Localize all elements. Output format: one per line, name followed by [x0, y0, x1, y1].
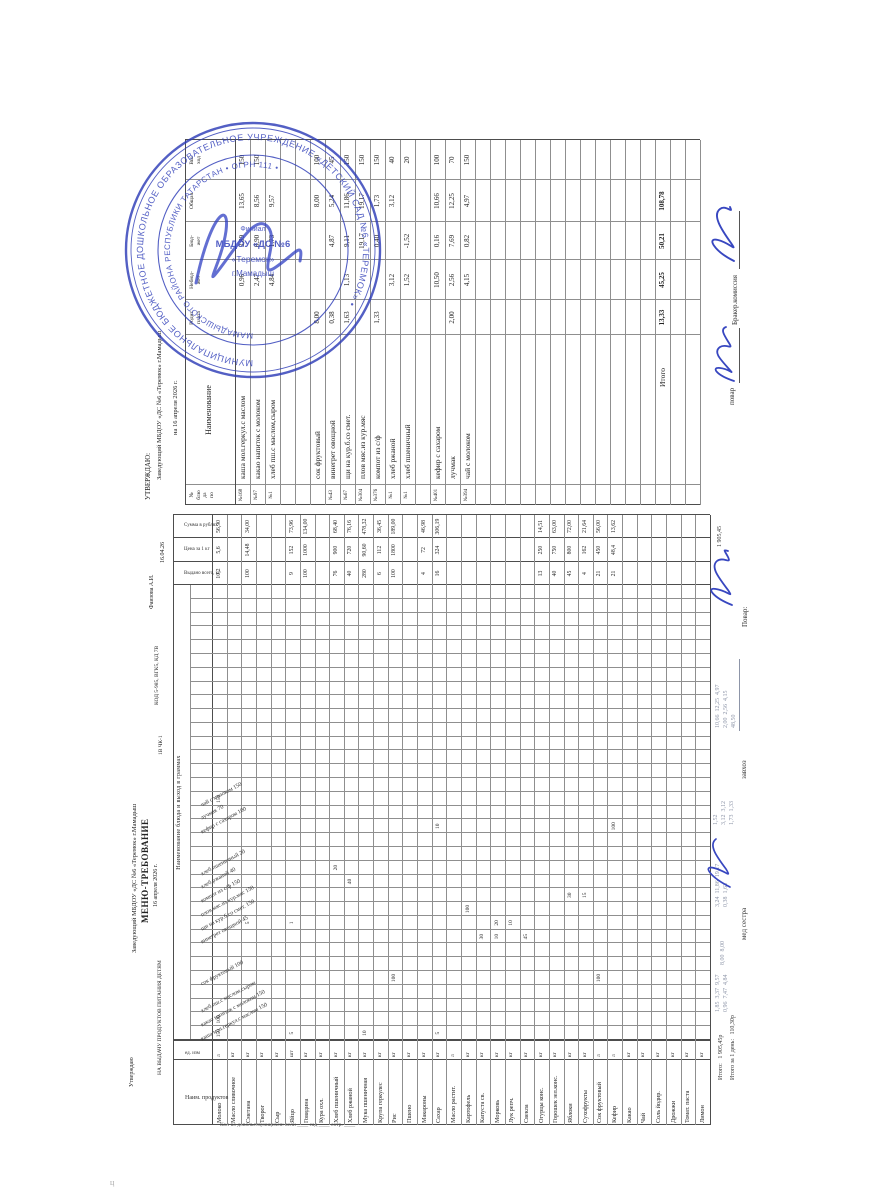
dish-column-line [190, 598, 710, 599]
dish-column-line [190, 832, 710, 833]
product-price: 14,48 [245, 539, 251, 561]
product-unit: кг [362, 1052, 368, 1057]
product-row-line [564, 515, 565, 1125]
dish-column-line [190, 956, 710, 957]
dish-card-number: №304 [359, 486, 364, 504]
product-name: Мука пшеничная [362, 1078, 369, 1123]
product-unit: кг [318, 1052, 324, 1057]
product-name: Рис [391, 1114, 398, 1124]
dish-card-number: №1 [389, 486, 394, 504]
product-price: 720 [347, 539, 353, 561]
product-sum: 134,00 [303, 516, 309, 537]
product-row-line [695, 515, 696, 1125]
product-price: 112 [377, 539, 383, 561]
dish-name: кефир с сахаром [433, 427, 442, 479]
row-line [415, 140, 416, 505]
cost-value: 70 [448, 143, 456, 177]
zavhoz-label: завхоз [740, 760, 748, 779]
product-unit: кг [377, 1052, 383, 1057]
cost-value: 3,12 [388, 184, 396, 218]
per-day-line: Итого за 1 день: 110,30р [730, 1015, 736, 1080]
quantity-cell: 100 [216, 1012, 222, 1026]
row-line [610, 140, 611, 505]
column-major-line [173, 561, 710, 562]
dish-column-line [190, 805, 710, 806]
form-subtitle: НА ВЫДАЧУ ПРОДУКТОВ ПИТАНИЯ ДЕТЯМ [157, 960, 163, 1075]
product-unit: кг [494, 1052, 500, 1057]
menu-requisition-page: Утверждаю Заведующий МБДОУ «ДС №6 «Терем… [128, 515, 775, 1175]
product-unit: кг [538, 1052, 544, 1057]
pencil-cook-sums: 10,66 12,25 4,97 2,00 2,56 4,15 48,50 [714, 685, 738, 729]
official-stamp: МУНИЦИПАЛЬНОЕ БЮДЖЕТНОЕ ДОШКОЛЬНОЕ ОБРАЗ… [118, 115, 388, 385]
product-unit: кг [699, 1052, 705, 1057]
product-name: Макароны [421, 1095, 428, 1123]
product-given-total: 4 [421, 563, 427, 584]
product-name: Хлеб ржаной [347, 1088, 354, 1123]
product-name: Лук репч. [508, 1098, 515, 1124]
product-name: Картофель [465, 1095, 472, 1123]
quantity-cell: 10 [508, 916, 514, 930]
product-row-line [520, 515, 521, 1125]
product-sum: 56,90 [216, 516, 222, 537]
dish-column-line [190, 984, 710, 985]
product-name: Капуста св. [479, 1093, 486, 1123]
product-sum: 36,45 [377, 516, 383, 537]
product-unit: л [450, 1054, 456, 1057]
dish-column-header: чай с молоком 150 [191, 757, 209, 802]
product-unit: кг [523, 1052, 529, 1057]
dish-column-line [190, 1011, 710, 1012]
cost-value: 2,00 [448, 301, 456, 335]
row-line [490, 140, 491, 505]
product-given-total: 10,2 [216, 563, 222, 584]
product-unit: шт [289, 1050, 295, 1057]
product-given-total: 40 [552, 563, 558, 584]
product-name: Хлеб пшеничный [333, 1077, 340, 1123]
product-price: 250 [538, 539, 544, 561]
product-price: 152 [289, 539, 295, 561]
product-unit: кг [333, 1052, 339, 1057]
product-row-line [256, 515, 257, 1125]
cost-value: 100 [433, 143, 441, 177]
table-outline-top [173, 515, 174, 1125]
product-price: 5,6 [216, 539, 222, 561]
cook-signature [708, 323, 740, 385]
product-price: 450 [596, 539, 602, 561]
product-sum: 306,19 [435, 516, 441, 537]
product-sum: 21,64 [582, 516, 588, 537]
product-price: 48,4 [611, 539, 617, 561]
quantity-cell: 150 [216, 1026, 222, 1040]
product-name: Дрожжи [670, 1101, 677, 1123]
row-line [430, 140, 431, 505]
row-line [640, 140, 641, 505]
product-row-line [373, 515, 374, 1125]
row-line [655, 140, 656, 505]
row-line [625, 140, 626, 505]
cost-value: 10,50 [433, 263, 441, 297]
quantity-cell: 10 [362, 1026, 368, 1040]
product-row-line [534, 515, 535, 1125]
product-unit: кг [391, 1052, 397, 1057]
product-unit: кг [406, 1052, 412, 1057]
product-unit: кг [567, 1052, 573, 1057]
dish-name: винегрет овощной [328, 420, 337, 479]
pencil-juice-sums: 8,00 8,00 [719, 941, 727, 965]
column-line [185, 504, 700, 505]
product-sum: 76,16 [347, 516, 353, 537]
product-given-total: 16 [435, 563, 441, 584]
dish-column-line [190, 625, 710, 626]
row-line [400, 140, 401, 505]
cost-value: 4,15 [463, 263, 471, 297]
table-outline-left [173, 1124, 710, 1125]
product-row-line [344, 515, 345, 1125]
dish-column-line [190, 791, 710, 792]
product-price: 1000 [303, 539, 309, 561]
column-major-line [173, 537, 710, 538]
product-name: Молоко [216, 1103, 223, 1123]
product-price: 324 [435, 539, 441, 561]
product-name: Кура охл. [318, 1098, 325, 1123]
svg-text:МБДОУ «ДС №6: МБДОУ «ДС №6 [216, 239, 291, 250]
product-row-line [666, 515, 667, 1125]
cost-value: 4,97 [463, 184, 471, 218]
dish-card-number: №394 [464, 486, 469, 504]
column-major-line [173, 1041, 710, 1042]
dish-group-header: Наименование блюда и выход в граммах [176, 585, 182, 1040]
column-line [185, 484, 700, 485]
product-unit: кг [640, 1052, 646, 1057]
quantity-cell: 5 [245, 916, 251, 930]
product-name: Сахар [435, 1107, 442, 1123]
row-line [700, 140, 701, 505]
dish-name: лучмак [448, 456, 457, 479]
dish-column-line [190, 943, 710, 944]
product-unit: кг [670, 1052, 676, 1057]
product-unit: л [216, 1054, 222, 1057]
product-name: Какао [626, 1107, 633, 1123]
product-sum: 34,00 [245, 516, 251, 537]
dish-column-line [190, 998, 710, 999]
product-unit: кг [508, 1052, 514, 1057]
product-price: 162 [582, 539, 588, 561]
product-sum: 478,32 [362, 516, 368, 537]
form-codes2: 1В ЧК-1 [158, 735, 164, 755]
product-unit: кг [421, 1052, 427, 1057]
cost-value: -1,52 [403, 224, 411, 258]
product-name: Огурцы конс. [538, 1087, 545, 1123]
product-row-line [315, 515, 316, 1125]
product-row-line [651, 515, 652, 1125]
product-unit: кг [479, 1052, 485, 1057]
dish-column-line [190, 667, 710, 668]
product-given-total: 100 [391, 563, 397, 584]
product-row-line [300, 515, 301, 1125]
cook-total-value: 1 905,45 [717, 526, 723, 547]
quantity-cell: 100 [596, 971, 602, 985]
dish-card-number: №43 [329, 486, 334, 504]
dish-column-line [190, 736, 710, 737]
product-name: Чай [640, 1113, 647, 1123]
dish-column-line [190, 846, 710, 847]
product-unit: кг [230, 1052, 236, 1057]
quantity-cell: 1 [289, 916, 295, 930]
dish-column-line [190, 653, 710, 654]
dish-card-number: №1 [404, 486, 409, 504]
total-value: 13,33 [658, 300, 666, 336]
scan-artifact: ц [110, 1178, 114, 1187]
product-price: 800 [567, 539, 573, 561]
quantity-cell: 20 [333, 861, 339, 875]
quantity-cell: 30 [479, 930, 485, 944]
product-sum: 46,98 [421, 516, 427, 537]
product-name: Говядина [303, 1099, 310, 1123]
product-row-line [432, 515, 433, 1125]
totals-value: 1 905,45р [718, 1035, 724, 1059]
approve-date: на 16 апреля 2026 г. [172, 380, 179, 435]
product-name: Кефир [611, 1106, 618, 1123]
product-given-total: 45 [567, 563, 573, 584]
dish-card-number: №401 [434, 486, 439, 504]
product-sum: 14,51 [538, 516, 544, 537]
product-name: Масло сливочное [230, 1077, 237, 1123]
product-name: Сок фруктовый [596, 1082, 603, 1123]
quantity-cell: 10 [494, 930, 500, 944]
product-unit: кг [684, 1052, 690, 1057]
product-row-line [402, 515, 403, 1125]
product-row-line [505, 515, 506, 1125]
column-major-line [173, 584, 710, 585]
product-name: Сухофрукты [582, 1090, 589, 1123]
product-row-line [241, 515, 242, 1125]
product-name: Пшено [406, 1105, 413, 1123]
menu-summary-page: УТВЕРЖДАЮ: Заведующий МБДОУ «ДС №6 «Тере… [130, 140, 765, 505]
unit-col-header: ед. изм [185, 1051, 200, 1056]
pencil-zavhoz-sums: 1,52 3,12 3,12 1,73 1,33 [712, 801, 736, 825]
products-col-header: Наим. продуктов [185, 1095, 228, 1101]
product-sum: 13,62 [611, 516, 617, 537]
product-unit: кг [552, 1052, 558, 1057]
product-row-line [490, 515, 491, 1125]
product-name: Масло растит. [450, 1086, 457, 1123]
row-line [505, 140, 506, 505]
product-unit: кг [465, 1052, 471, 1057]
row-line [445, 140, 446, 505]
product-sum: 72,00 [567, 516, 573, 537]
quantity-cell: 5 [289, 1026, 295, 1040]
dish-column-line [190, 929, 710, 930]
dish-column-line [190, 874, 710, 875]
quantity-cell: 30 [567, 888, 573, 902]
product-given-total: 9 [289, 563, 295, 584]
product-row-line [417, 515, 418, 1125]
row-line [670, 140, 671, 505]
product-name: Лимон [699, 1105, 706, 1123]
cook2-label: Повар: [741, 607, 749, 627]
product-unit: кг [626, 1052, 632, 1057]
commission-signature [704, 199, 742, 267]
product-given-total: 76 [333, 563, 339, 584]
product-given-total: 280 [362, 563, 368, 584]
cost-value: 0,16 [433, 224, 441, 258]
product-given-total: 4 [582, 563, 588, 584]
product-row-line [549, 515, 550, 1125]
cook-sums-underline [738, 659, 740, 731]
product-unit: кг [259, 1052, 265, 1057]
form-date-short: 16.04.26 [160, 542, 166, 563]
quantity-cell: 150 [216, 792, 222, 806]
product-row-line [388, 515, 389, 1125]
form-title: МЕНЮ-ТРЕБОВАНИЕ [140, 819, 150, 923]
dish-column-line [190, 763, 710, 764]
product-unit: кг [655, 1052, 661, 1057]
product-sum: 73,96 [289, 516, 295, 537]
dish-column-line [190, 1025, 710, 1026]
product-price: 72 [421, 539, 427, 561]
medsestra-signature [700, 833, 736, 891]
quantity-cell: 100 [465, 902, 471, 916]
product-unit: кг [582, 1052, 588, 1057]
quantity-cell: 100 [391, 971, 397, 985]
dish-card-number: №97 [254, 486, 259, 504]
product-row-line [593, 515, 594, 1125]
product-row-line [285, 515, 286, 1125]
form-date: 16 апреля 2026 г. [153, 864, 159, 907]
approve-heading: УТВЕРЖДАЮ: [144, 453, 152, 500]
product-name: Крупа геркулес [377, 1082, 384, 1123]
dish-name: хлеб ржаной [388, 438, 397, 479]
product-name: Свекла [523, 1104, 530, 1123]
product-row-line [681, 515, 682, 1125]
product-sum: 189,00 [391, 516, 397, 537]
product-name: Сметана [245, 1101, 252, 1123]
quantity-cell: 10 [435, 819, 441, 833]
quantity-cell: 45 [523, 930, 529, 944]
product-name: Яблоки [567, 1103, 574, 1123]
product-given-total: 40 [347, 563, 353, 584]
product-given-total: 6 [377, 563, 383, 584]
product-price: 90,60 [362, 539, 368, 561]
product-unit: кг [347, 1052, 353, 1057]
product-name: Морковь [494, 1100, 501, 1123]
dish-card-number: №67 [344, 486, 349, 504]
dish-name: сок фруктовый [313, 431, 322, 479]
dish-name: каша мол.геркул.с маслом [238, 396, 247, 479]
dish-name: какао напиток с молоком [253, 399, 262, 479]
dish-column-line [190, 722, 710, 723]
product-sum: 68,40 [333, 516, 339, 537]
dish-name: плов мяс.из кур.мяс [358, 415, 367, 479]
row-line [535, 140, 536, 505]
product-name: Сыр [274, 1112, 281, 1123]
dish-card-number: №168 [239, 486, 244, 504]
cost-value: 40 [388, 143, 396, 177]
column-major-line [173, 1039, 710, 1040]
dish-column-line [190, 694, 710, 695]
product-price: 750 [552, 539, 558, 561]
quantity-cell: 15 [582, 888, 588, 902]
cook2-signature [704, 545, 740, 609]
dish-name: чай с молоком [463, 433, 472, 479]
total-value: 50,21 [658, 223, 666, 259]
dish-card-number: №1 [269, 486, 274, 504]
product-row-line [329, 515, 330, 1125]
commission-label: Бракер.комиссия [731, 275, 739, 325]
product-given-total: 100 [303, 563, 309, 584]
dish-column-line [190, 860, 710, 861]
product-row-line [637, 515, 638, 1125]
approve2-heading: Утверждаю [129, 1057, 135, 1087]
product-row-line [271, 515, 272, 1125]
dish-column-line [190, 915, 710, 916]
dish-name: хлеб пшеничный [403, 425, 412, 480]
org2-line: Заведующий МБДОУ «ДС №6 «Теремок» г.Мама… [131, 804, 138, 953]
row-line [685, 140, 686, 505]
dish-card-number: №376 [374, 486, 379, 504]
product-price: 1800 [391, 539, 397, 561]
quantity-cell: 40 [347, 875, 353, 889]
table-outline-right [173, 514, 710, 515]
dish-column-line [190, 639, 710, 640]
cost-value: 12,25 [448, 184, 456, 218]
product-name: Яйцо [289, 1109, 296, 1123]
cook-label: повар [728, 388, 736, 405]
sum-col-header: Сумма в рублях [184, 523, 218, 528]
cost-value: 2,56 [448, 263, 456, 297]
total-label: Итого [658, 368, 667, 387]
product-row-line [461, 515, 462, 1125]
product-unit: л [611, 1054, 617, 1057]
product-sum: 63,00 [552, 516, 558, 537]
product-name: Творог [259, 1105, 266, 1123]
cost-value: 1,52 [403, 263, 411, 297]
quantity-cell: 100 [611, 819, 617, 833]
product-given-total: 21 [596, 563, 602, 584]
product-given-total: 100 [245, 563, 251, 584]
product-row-line [607, 515, 608, 1125]
quantity-cell: 20 [494, 916, 500, 930]
product-sum: 56,00 [596, 516, 602, 537]
per-day-value: 110,30р [730, 1015, 736, 1034]
product-row-line [476, 515, 477, 1125]
product-name: Горошек зел.конс. [552, 1075, 559, 1123]
dish-column-line [190, 887, 710, 888]
total-value: 108,78 [658, 183, 666, 219]
dish-column-line [190, 749, 710, 750]
quantity-cell: 5 [435, 1026, 441, 1040]
row-line [550, 140, 551, 505]
dish-name: хлеб пш.с маслом,сыром [268, 400, 277, 479]
dish-column-line [190, 970, 710, 971]
column-major-line [173, 1059, 710, 1060]
dish-column-line [190, 681, 710, 682]
product-unit: л [596, 1054, 602, 1057]
product-unit: кг [303, 1052, 309, 1057]
product-price: 900 [333, 539, 339, 561]
pencil-breakfast-sums: 1,85 3,37 9,57 0,96 7,47 4,84 [714, 975, 730, 1013]
product-row-line [622, 515, 623, 1125]
product-given-total: 13 [538, 563, 544, 584]
dish-column-line [190, 818, 710, 819]
column-header: № блю да по [189, 485, 215, 505]
cost-value: 20 [403, 143, 411, 177]
medsestra-label: мед сестра [740, 908, 748, 940]
total-value: 45,25 [658, 262, 666, 298]
product-given-total: 21 [611, 563, 617, 584]
cost-value: 7,69 [448, 224, 456, 258]
product-row-line [446, 515, 447, 1125]
